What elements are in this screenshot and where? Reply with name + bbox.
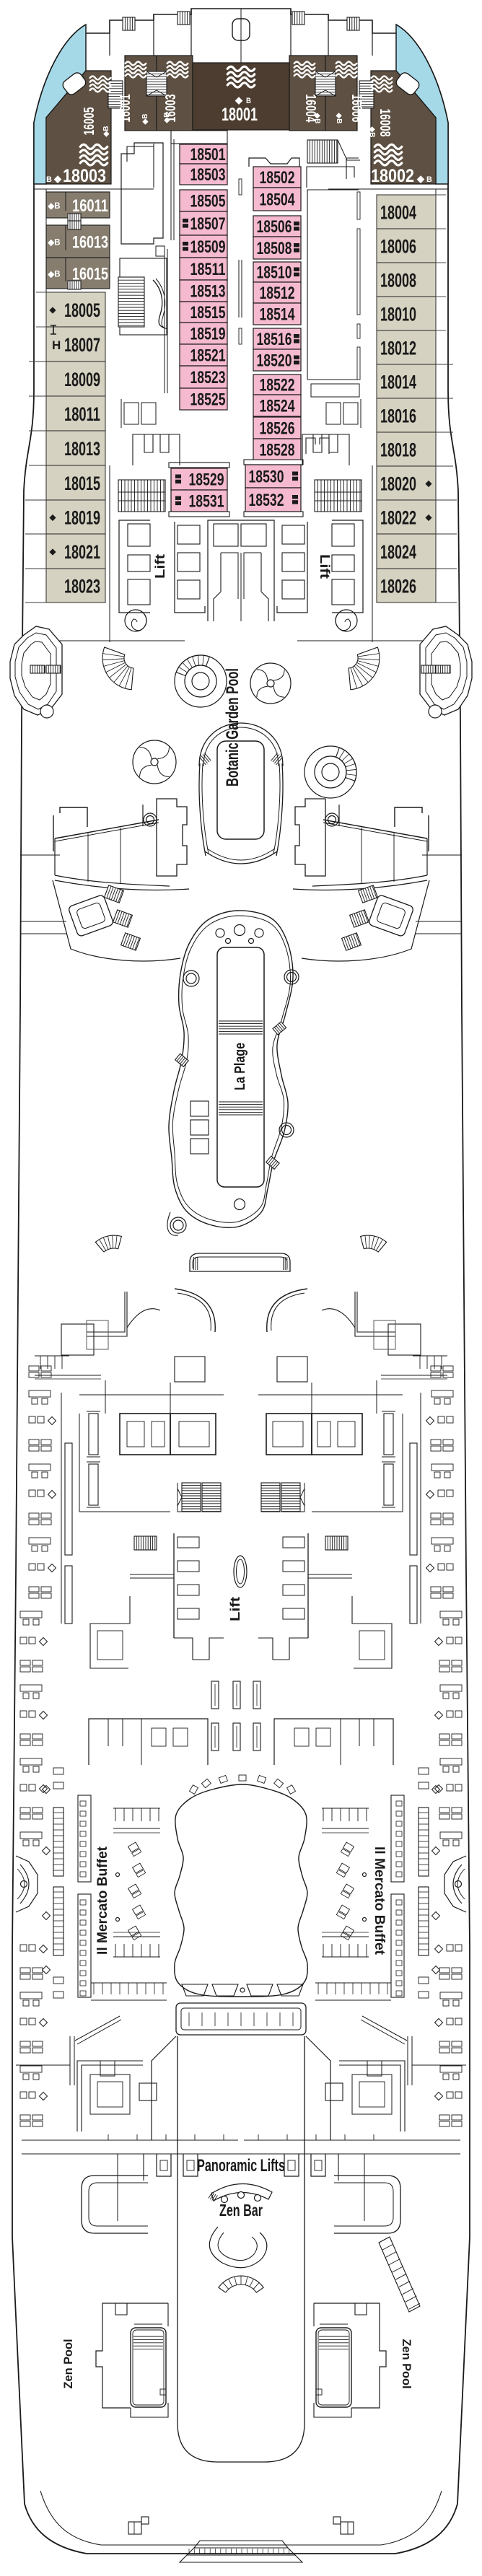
svg-text:18014: 18014: [380, 372, 416, 393]
svg-text:16006: 16006: [349, 95, 364, 123]
svg-text:18005: 18005: [64, 299, 100, 321]
svg-text:◆: ◆: [416, 173, 425, 184]
svg-text:18521: 18521: [190, 346, 226, 366]
svg-text:18508: 18508: [257, 239, 292, 258]
svg-text:18531: 18531: [189, 492, 224, 512]
svg-text:18015: 18015: [64, 473, 100, 494]
svg-text:◆B: ◆B: [141, 114, 149, 126]
svg-text:18004: 18004: [380, 202, 416, 224]
svg-text:16008: 16008: [377, 109, 393, 137]
svg-text:18514: 18514: [260, 305, 295, 325]
svg-text:18024: 18024: [380, 541, 416, 563]
svg-text:18501: 18501: [190, 145, 226, 165]
svg-text:◆B: ◆B: [102, 126, 110, 138]
svg-text:18519: 18519: [190, 325, 226, 344]
svg-text:18026: 18026: [380, 576, 416, 597]
svg-text:18006: 18006: [380, 236, 416, 258]
svg-text:◆B: ◆B: [47, 239, 60, 247]
svg-text:18507: 18507: [190, 214, 226, 234]
svg-text:18008: 18008: [380, 270, 416, 292]
svg-text:18505: 18505: [190, 192, 226, 211]
svg-text:◆B: ◆B: [313, 113, 321, 124]
svg-text:18532: 18532: [249, 491, 284, 510]
svg-text:18019: 18019: [64, 507, 100, 529]
svg-text:Lift: Lift: [317, 554, 332, 579]
svg-text:◆: ◆: [53, 173, 62, 184]
svg-text:18512: 18512: [260, 284, 295, 303]
svg-text:La Plage: La Plage: [232, 1043, 248, 1090]
svg-text:Botanic Garden Pool: Botanic Garden Pool: [223, 668, 242, 787]
svg-text:◆B: ◆B: [47, 271, 60, 279]
svg-text:B: B: [46, 175, 52, 184]
svg-text:18020: 18020: [380, 473, 416, 495]
svg-text:18523: 18523: [190, 368, 226, 387]
svg-text:◆: ◆: [235, 95, 243, 105]
svg-text:18002: 18002: [371, 166, 414, 186]
svg-text:18018: 18018: [380, 439, 416, 461]
svg-text:◆B: ◆B: [335, 113, 343, 124]
svg-text:18001: 18001: [222, 105, 258, 125]
svg-text:18007: 18007: [64, 334, 100, 356]
svg-text:16001: 16001: [118, 95, 133, 123]
svg-text:18012: 18012: [380, 338, 416, 359]
svg-text:18516: 18516: [257, 330, 292, 349]
svg-text:18526: 18526: [260, 419, 295, 439]
svg-text:18022: 18022: [380, 507, 416, 529]
svg-text:18016: 18016: [380, 406, 416, 427]
svg-text:18525: 18525: [190, 390, 226, 410]
svg-text:18013: 18013: [64, 438, 100, 460]
svg-text:H: H: [52, 338, 61, 352]
svg-text:18528: 18528: [260, 441, 295, 460]
svg-text:18010: 18010: [380, 304, 416, 325]
svg-text:Il Mercato Buffet: Il Mercato Buffet: [372, 1846, 387, 1955]
svg-text:Zen Pool: Zen Pool: [61, 2339, 75, 2389]
svg-text:16011: 16011: [72, 196, 108, 216]
svg-text:18530: 18530: [249, 468, 284, 487]
svg-text:18503: 18503: [190, 165, 226, 185]
svg-text:18021: 18021: [64, 541, 100, 563]
svg-text:18511: 18511: [190, 260, 226, 279]
svg-text:18510: 18510: [257, 263, 292, 283]
svg-text:18522: 18522: [260, 376, 295, 395]
svg-text:B: B: [426, 175, 432, 184]
svg-text:◆B: ◆B: [47, 202, 60, 211]
svg-text:16005: 16005: [82, 108, 97, 136]
svg-text:18520: 18520: [257, 351, 292, 371]
svg-text:18023: 18023: [64, 576, 100, 597]
svg-text:18509: 18509: [190, 237, 226, 257]
svg-text:18513: 18513: [190, 282, 226, 302]
svg-text:18515: 18515: [190, 303, 226, 323]
svg-text:18504: 18504: [260, 190, 295, 210]
svg-text:◆B: ◆B: [368, 126, 376, 138]
svg-text:Lift: Lift: [153, 554, 167, 579]
svg-text:18009: 18009: [64, 369, 100, 390]
svg-text:Il Mercato Buffet: Il Mercato Buffet: [95, 1846, 110, 1955]
svg-text:16013: 16013: [72, 233, 108, 253]
svg-text:Zen Pool: Zen Pool: [400, 2339, 413, 2389]
svg-text:Panoramic Lifts: Panoramic Lifts: [197, 2156, 285, 2176]
svg-text:18011: 18011: [64, 403, 100, 425]
svg-text:18506: 18506: [257, 217, 292, 237]
svg-text:18502: 18502: [260, 168, 295, 188]
svg-text:Zen Bar: Zen Bar: [219, 2201, 263, 2220]
svg-text:18003: 18003: [63, 166, 106, 186]
svg-text:18524: 18524: [260, 397, 295, 416]
svg-text:◆B: ◆B: [163, 113, 171, 124]
svg-text:Lift: Lift: [228, 1597, 242, 1621]
svg-text:18529: 18529: [189, 470, 224, 490]
